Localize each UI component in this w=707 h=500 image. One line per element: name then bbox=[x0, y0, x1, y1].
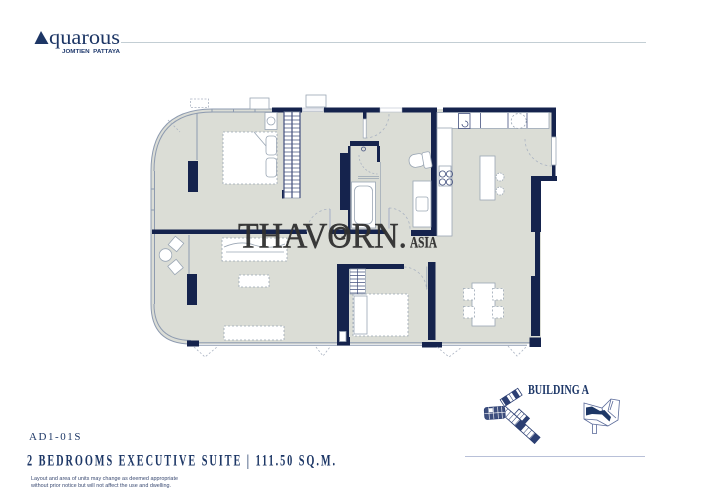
svg-text:THAVORN.: THAVORN. bbox=[238, 216, 407, 256]
svg-text:without prior notice but will: without prior notice but will not affect… bbox=[30, 483, 171, 489]
svg-text:Layout and area of units may c: Layout and area of units may change as d… bbox=[31, 476, 178, 482]
svg-text:ASIA: ASIA bbox=[410, 235, 437, 252]
svg-text:2 BEDROOMS EXECUTIVE SUITE | 1: 2 BEDROOMS EXECUTIVE SUITE | 111.50 SQ.M… bbox=[27, 453, 337, 470]
svg-text:JOMTIEN PATTAYA: JOMTIEN PATTAYA bbox=[62, 49, 120, 55]
svg-text:AD1-01S: AD1-01S bbox=[29, 432, 82, 443]
svg-text:quarous: quarous bbox=[49, 25, 120, 49]
svg-text:BUILDING A: BUILDING A bbox=[528, 383, 590, 398]
